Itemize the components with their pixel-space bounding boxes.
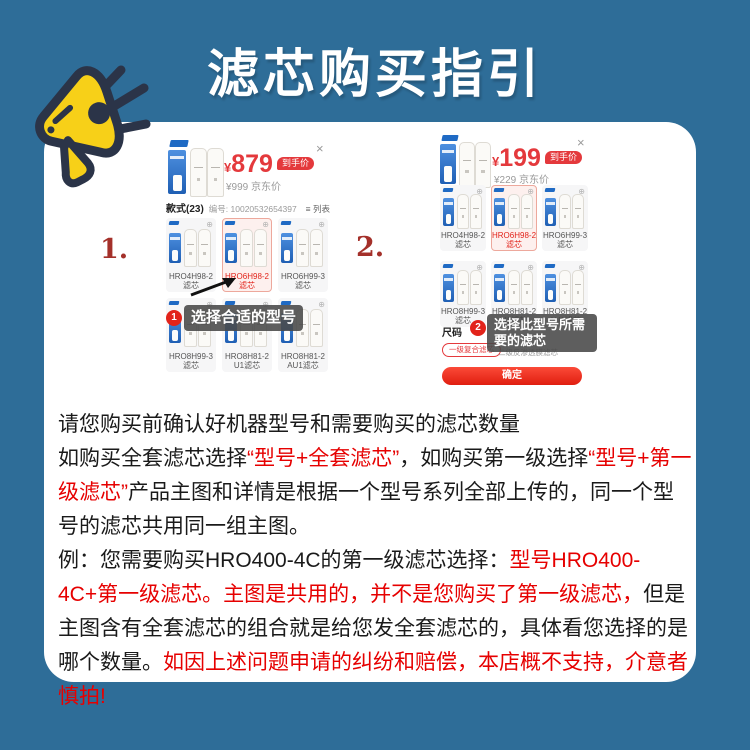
filter-bottle-image [457,194,469,229]
note-paragraph: 请您购买前确认好机器型号和需要购买的滤芯数量 [58,408,694,442]
size-section-label: 尺码 [442,324,462,339]
filter-box-image [545,274,556,302]
list-view-toggle[interactable]: ≡ 列表 [306,203,330,215]
haier-logo [169,221,180,225]
filter-bottle-image [457,270,469,305]
step-1-number: 1. [100,234,128,265]
haier-logo [494,264,505,268]
filter-bottle-image [198,229,211,267]
model-tile[interactable]: ⊕ HRO8H99-3滤芯 [440,261,486,327]
haier-logo [443,188,454,192]
tooltip: 选择合适的型号 [184,305,303,331]
filter-box-image [225,233,237,263]
filter-bottle-image [207,148,224,197]
haier-logo [441,135,458,141]
filter-bottle-image [559,270,571,305]
filter-bottle-image [508,194,520,229]
price-value: 879 [231,150,273,178]
filter-bottle-image [310,309,323,347]
filter-box-image [494,198,505,226]
filter-bottle-image [190,148,207,197]
haier-logo [545,264,556,268]
magnify-icon: ⊕ [262,221,269,229]
filter-bottle-image [459,142,475,188]
model-grid: ⊕ HRO4H98-2滤芯 ⊕ HRO6H98-2滤芯 ⊕ HRO [166,218,330,378]
step-2-number: 2. [356,232,384,263]
filter-bottle-image [254,229,267,267]
price-row: ¥879到手价 [224,150,314,179]
filter-bottle-image [521,270,533,305]
megaphone-icon [20,42,160,200]
list-price: ¥999 京东价 [226,178,281,193]
filter-bottle-image [508,270,520,305]
purchase-notes: 请您购买前确认好机器型号和需要购买的滤芯数量 如购买全套滤芯选择“型号+全套滤芯… [58,408,694,714]
price-value: 199 [499,144,541,172]
model-tile-label: HRO8H99-3滤芯 [167,352,215,370]
model-tile-label: HRO4H98-2滤芯 [441,231,485,249]
haier-logo [225,221,236,225]
model-tile[interactable]: ⊕ HRO6H99-3滤芯 [542,185,588,251]
filter-bottle-image [310,229,323,267]
list-icon: ≡ [306,204,311,214]
filter-bottle-image [470,270,482,305]
filter-bottle-image [475,142,491,188]
model-tile-label: HRO6H99-3滤芯 [543,231,587,249]
note-paragraph: 如购买全套滤芯选择“型号+全套滤芯”，如购买第一级选择“型号+第一级滤芯”产品主… [58,442,694,544]
haier-logo [545,188,556,192]
filter-box-image [494,274,505,302]
filter-bottle-image [184,229,197,267]
styles-count-label: 款式(23) [166,200,204,215]
sku-code-label: 编号: 10020532654397 [209,203,306,215]
magnify-icon: ⊕ [318,301,325,309]
filter-bottle-image [240,229,253,267]
filter-box-image [281,233,293,263]
model-tile-label: HRO8H81-2AU1滤芯 [279,352,327,370]
filter-bottle-image [572,270,584,305]
model-tile-label: HRO6H98-2滤芯 [492,231,536,249]
promo-banner: 滤芯购买指引 1. 2. ¥879到手价 ¥999 京东价 × 款式(23) 编… [0,0,750,750]
filter-box-image [168,150,186,194]
deal-price-badge: 到手价 [545,151,582,164]
step-badge: 1 [166,310,182,326]
filter-box-image [169,233,181,263]
close-icon[interactable]: × [316,142,324,155]
pointer-arrow [188,274,238,298]
haier-logo [169,301,180,305]
app-screenshot-1: ¥879到手价 ¥999 京东价 × 款式(23) 编号: 1002053265… [166,134,330,382]
model-tile[interactable]: ⊕ HRO4H98-2滤芯 [440,185,486,251]
step-badge: 2 [470,320,486,336]
filter-box-image [440,144,456,184]
app-screenshot-2: ¥199到手价 ¥229 京东价 × ⊕ HRO4H98-2滤芯 ⊕ HRO6H… [440,131,590,389]
filter-bottle-image [470,194,482,229]
filter-box-image [443,274,454,302]
filter-bottle-image [521,194,533,229]
filter-bottle-image [559,194,571,229]
tooltip: 选择此型号所需要的滤芯 [487,314,597,352]
list-price: ¥229 京东价 [494,171,549,186]
magnify-icon: ⊕ [206,221,213,229]
styles-row: 款式(23) 编号: 10020532654397 ≡ 列表 [166,200,330,215]
haier-logo [494,188,505,192]
deal-price-badge: 到手价 [277,157,314,170]
filter-bottle-image [572,194,584,229]
model-tile[interactable]: ⊕ HRO6H99-3滤芯 [278,218,328,292]
model-tile-label: HRO6H99-3滤芯 [279,272,327,290]
haier-logo [443,264,454,268]
model-tile-label: HRO8H81-2U1滤芯 [223,352,271,370]
model-tile-selected[interactable]: ⊕ HRO6H98-2滤芯 [491,185,537,251]
price-row: ¥199到手价 [492,144,582,173]
filter-bottle-image [296,229,309,267]
close-icon[interactable]: × [577,136,585,149]
haier-logo [281,221,292,225]
confirm-button[interactable]: 确定 [442,367,582,385]
haier-logo [169,140,188,147]
filter-box-image [545,198,556,226]
magnify-icon: ⊕ [318,221,325,229]
filter-box-image [443,198,454,226]
note-paragraph: 例：您需要购买HRO400-4C的第一级滤芯选择：型号HRO400-4C+第一级… [58,544,694,714]
